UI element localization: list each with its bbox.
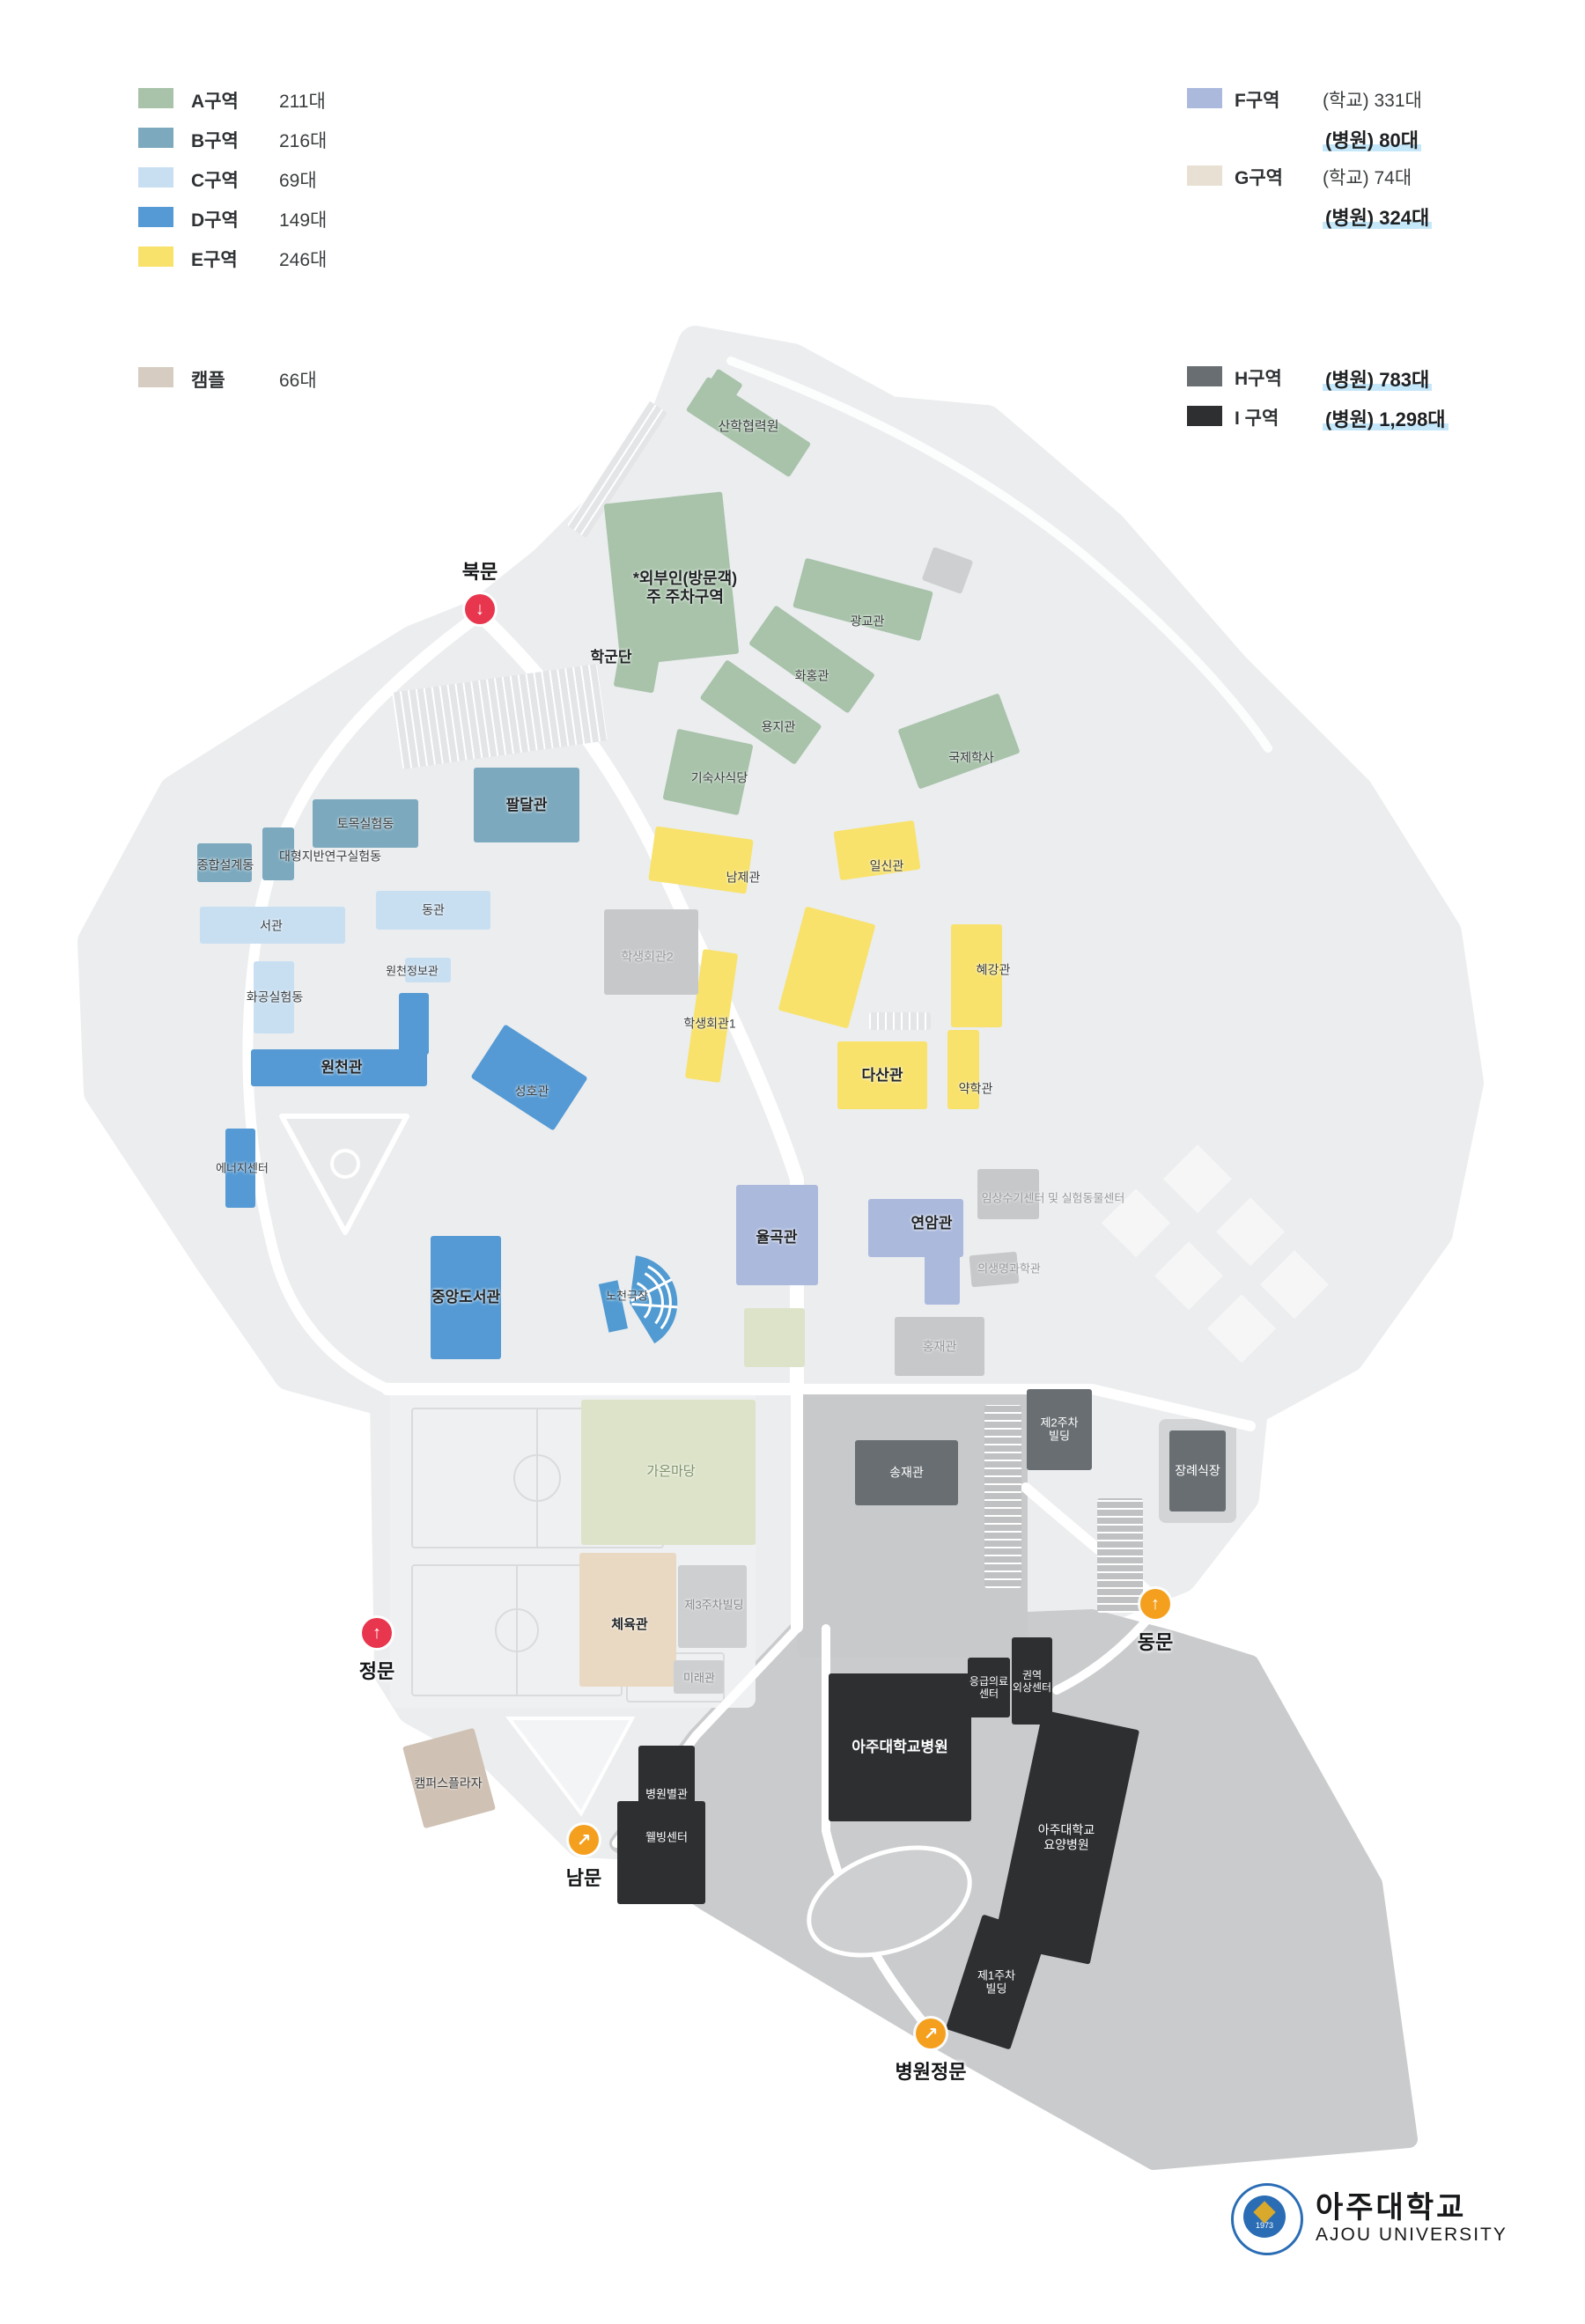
label-songjaegwan: 송재관 xyxy=(889,1466,924,1481)
university-name-korean: 아주대학교 xyxy=(1316,2193,1508,2225)
label-international-dorm: 국제학사 xyxy=(948,751,994,766)
label-emergency-center: 응급의료 센터 xyxy=(969,1675,1008,1700)
label-chem-lab: 화공실험동 xyxy=(247,990,303,1005)
legend-value-D: 149대 xyxy=(279,206,327,232)
legend-swatch-A xyxy=(138,88,173,108)
legend-label-I: I 구역 xyxy=(1235,404,1279,430)
label-hyeganggwan: 혜강관 xyxy=(977,963,1011,978)
legend-swatch-C xyxy=(138,167,173,188)
legend-swatch-E xyxy=(138,246,173,267)
label-parking-2: 제2주차 빌딩 xyxy=(1040,1416,1078,1444)
legend-label-G: G구역 xyxy=(1235,164,1283,190)
label-hongjaegwan: 홍재관 xyxy=(923,1339,957,1354)
parking-stripes xyxy=(1097,1498,1143,1613)
north-gate: ↓ xyxy=(465,594,495,624)
label-hwahonggwan: 화홍관 xyxy=(795,669,829,684)
north-gate-arrow-icon: ↓ xyxy=(475,599,484,620)
legend-value-I-1: (병원) 1,298대 xyxy=(1323,404,1449,432)
south-gate: ↗ xyxy=(569,1825,599,1855)
east-gate: ↑ xyxy=(1140,1589,1170,1619)
university-logo: 1973 아주대학교 AJOU UNIVERSITY xyxy=(1231,2183,1508,2255)
legend-swatch-G xyxy=(1187,165,1222,186)
legend-label-C: C구역 xyxy=(191,166,239,193)
legend-label-D: D구역 xyxy=(191,206,239,232)
legend-label-H: H구역 xyxy=(1235,364,1282,391)
label-biomed-hall: 의생명과학관 xyxy=(977,1261,1041,1275)
label-woncheongwan: 원천관 xyxy=(321,1059,363,1077)
label-west-hall: 서관 xyxy=(260,919,283,934)
label-gaon-madang: 가온마당 xyxy=(646,1464,695,1480)
legend-value-A: 211대 xyxy=(279,87,326,114)
legend-swatch-B xyxy=(138,128,173,148)
building-woncheongwan-wing xyxy=(399,993,429,1055)
label-design-bldg: 종합설계동 xyxy=(197,858,254,873)
legend-label-A: A구역 xyxy=(191,87,239,114)
label-pharmacy: 약학관 xyxy=(959,1082,993,1097)
hospital-main-gate-arrow-icon: ↗ xyxy=(924,2023,939,2045)
legend-value-G-2: (병원) 324대 xyxy=(1323,202,1432,231)
legend-value-CAMPL: 66대 xyxy=(279,366,317,393)
label-civil-lab: 토목실험동 xyxy=(337,816,394,831)
university-seal-icon: 1973 xyxy=(1231,2183,1303,2255)
label-yeonamgwan: 연암관 xyxy=(911,1215,953,1232)
legend-value-G-1: (학교) 74대 xyxy=(1323,164,1412,190)
label-geotech-lab: 대형지반연구실험동 xyxy=(279,849,381,864)
label-ajou-hospital: 아주대학교병원 xyxy=(851,1739,947,1756)
label-dorm-cafeteria: 기숙사식당 xyxy=(691,771,748,786)
label-visitor-parking: *외부인(방문객) 주 주차구역 xyxy=(633,570,737,607)
building-pharmacy xyxy=(947,1030,979,1109)
building-yeonamgwan-wing xyxy=(925,1254,960,1305)
label-energy-center: 에너지센터 xyxy=(216,1161,269,1174)
label-miraegwan: 미래관 xyxy=(683,1671,715,1684)
legend-label-CAMPL: 캠플 xyxy=(191,366,225,393)
label-hospital-annex: 병원별관 xyxy=(645,1787,688,1800)
label-parking-1: 제1주차 빌딩 xyxy=(977,1968,1015,1996)
south-gate-arrow-icon: ↗ xyxy=(577,1829,592,1851)
label-parking-3: 제3주차빌딩 xyxy=(684,1598,743,1611)
label-sanhak: 산학협력원 xyxy=(718,419,778,435)
label-ajou-nursing-hospital: 아주대학교 요양병원 xyxy=(1038,1822,1095,1851)
label-dasangwan: 다산관 xyxy=(862,1066,903,1084)
parking-stripes xyxy=(984,1405,1021,1588)
legend-label-B: B구역 xyxy=(191,127,239,153)
label-clinical-center: 임상수기센터 및 실험동물센터 xyxy=(982,1191,1125,1204)
label-yulgokgwan: 율곡관 xyxy=(756,1229,798,1247)
main-gate: ↑ xyxy=(362,1618,392,1648)
label-wellbeing-center: 웰빙센터 xyxy=(645,1830,688,1843)
legend-value-C: 69대 xyxy=(279,166,317,193)
legend-swatch-H xyxy=(1187,366,1222,386)
label-namjegwan: 남제관 xyxy=(726,871,761,886)
seal-emblem-icon xyxy=(1253,2201,1275,2223)
label-ilsingwan: 일신관 xyxy=(870,859,904,874)
legend-label-E: E구역 xyxy=(191,246,238,272)
legend-value-H-1: (병원) 783대 xyxy=(1323,364,1432,393)
east-gate-arrow-icon: ↑ xyxy=(1151,1594,1160,1614)
university-name-english: AJOU UNIVERSITY xyxy=(1316,2224,1508,2246)
label-open-air-theater: 노천극장 xyxy=(606,1289,648,1302)
main-gate-arrow-icon: ↑ xyxy=(372,1623,381,1644)
legend-swatch-F xyxy=(1187,88,1222,108)
legend-value-E: 246대 xyxy=(279,246,327,272)
label-yongjigwan: 용지관 xyxy=(762,720,796,735)
label-paldalgwan: 팔달관 xyxy=(506,796,548,813)
legend-swatch-CAMPL xyxy=(138,367,173,387)
legend-swatch-I xyxy=(1187,406,1222,426)
legend-swatch-D xyxy=(138,207,173,227)
legend-label-F: F구역 xyxy=(1235,86,1279,113)
label-student-union-1: 학생회관1 xyxy=(683,1017,735,1032)
label-gwanggyogwan: 광교관 xyxy=(851,614,885,629)
campus-area xyxy=(95,343,1466,1842)
legend-value-B: 216대 xyxy=(279,127,327,153)
label-student-union-2: 학생회관2 xyxy=(621,950,673,965)
main-gate-label: 정문 xyxy=(359,1656,394,1684)
label-woncheon-info: 원천정보관 xyxy=(386,964,439,977)
label-central-library: 중앙도서관 xyxy=(431,1289,500,1306)
building-field-small xyxy=(744,1308,805,1367)
label-funeral-hall: 장례식장 xyxy=(1175,1464,1220,1479)
hospital-main-gate: ↗ xyxy=(916,2019,946,2048)
parking-stripes xyxy=(869,1012,931,1030)
building-wellbeing-center xyxy=(617,1801,705,1904)
label-trauma-center: 권역 외상센터 xyxy=(1013,1668,1051,1693)
legend-value-F-2: (병원) 80대 xyxy=(1323,125,1421,153)
label-rotc: 학군단 xyxy=(591,649,632,666)
campus-parking-map: 산학협력원*외부인(방문객) 주 주차구역학군단광교관화홍관용지관기숙사식당국제… xyxy=(0,0,1585,2324)
label-campus-plaza: 캠퍼스플라자 xyxy=(414,1776,482,1791)
university-wordmark: 아주대학교 AJOU UNIVERSITY xyxy=(1316,2193,1508,2247)
east-gate-label: 동문 xyxy=(1138,1627,1173,1655)
south-gate-label: 남문 xyxy=(566,1863,601,1891)
north-gate-label: 북문 xyxy=(462,556,498,585)
label-seonghogwan: 성호관 xyxy=(515,1085,549,1099)
label-gymnasium: 체육관 xyxy=(611,1617,647,1633)
label-east-hall: 동관 xyxy=(422,903,445,918)
legend-value-F-1: (학교) 331대 xyxy=(1323,86,1422,113)
hospital-main-gate-label: 병원정문 xyxy=(896,2056,967,2085)
